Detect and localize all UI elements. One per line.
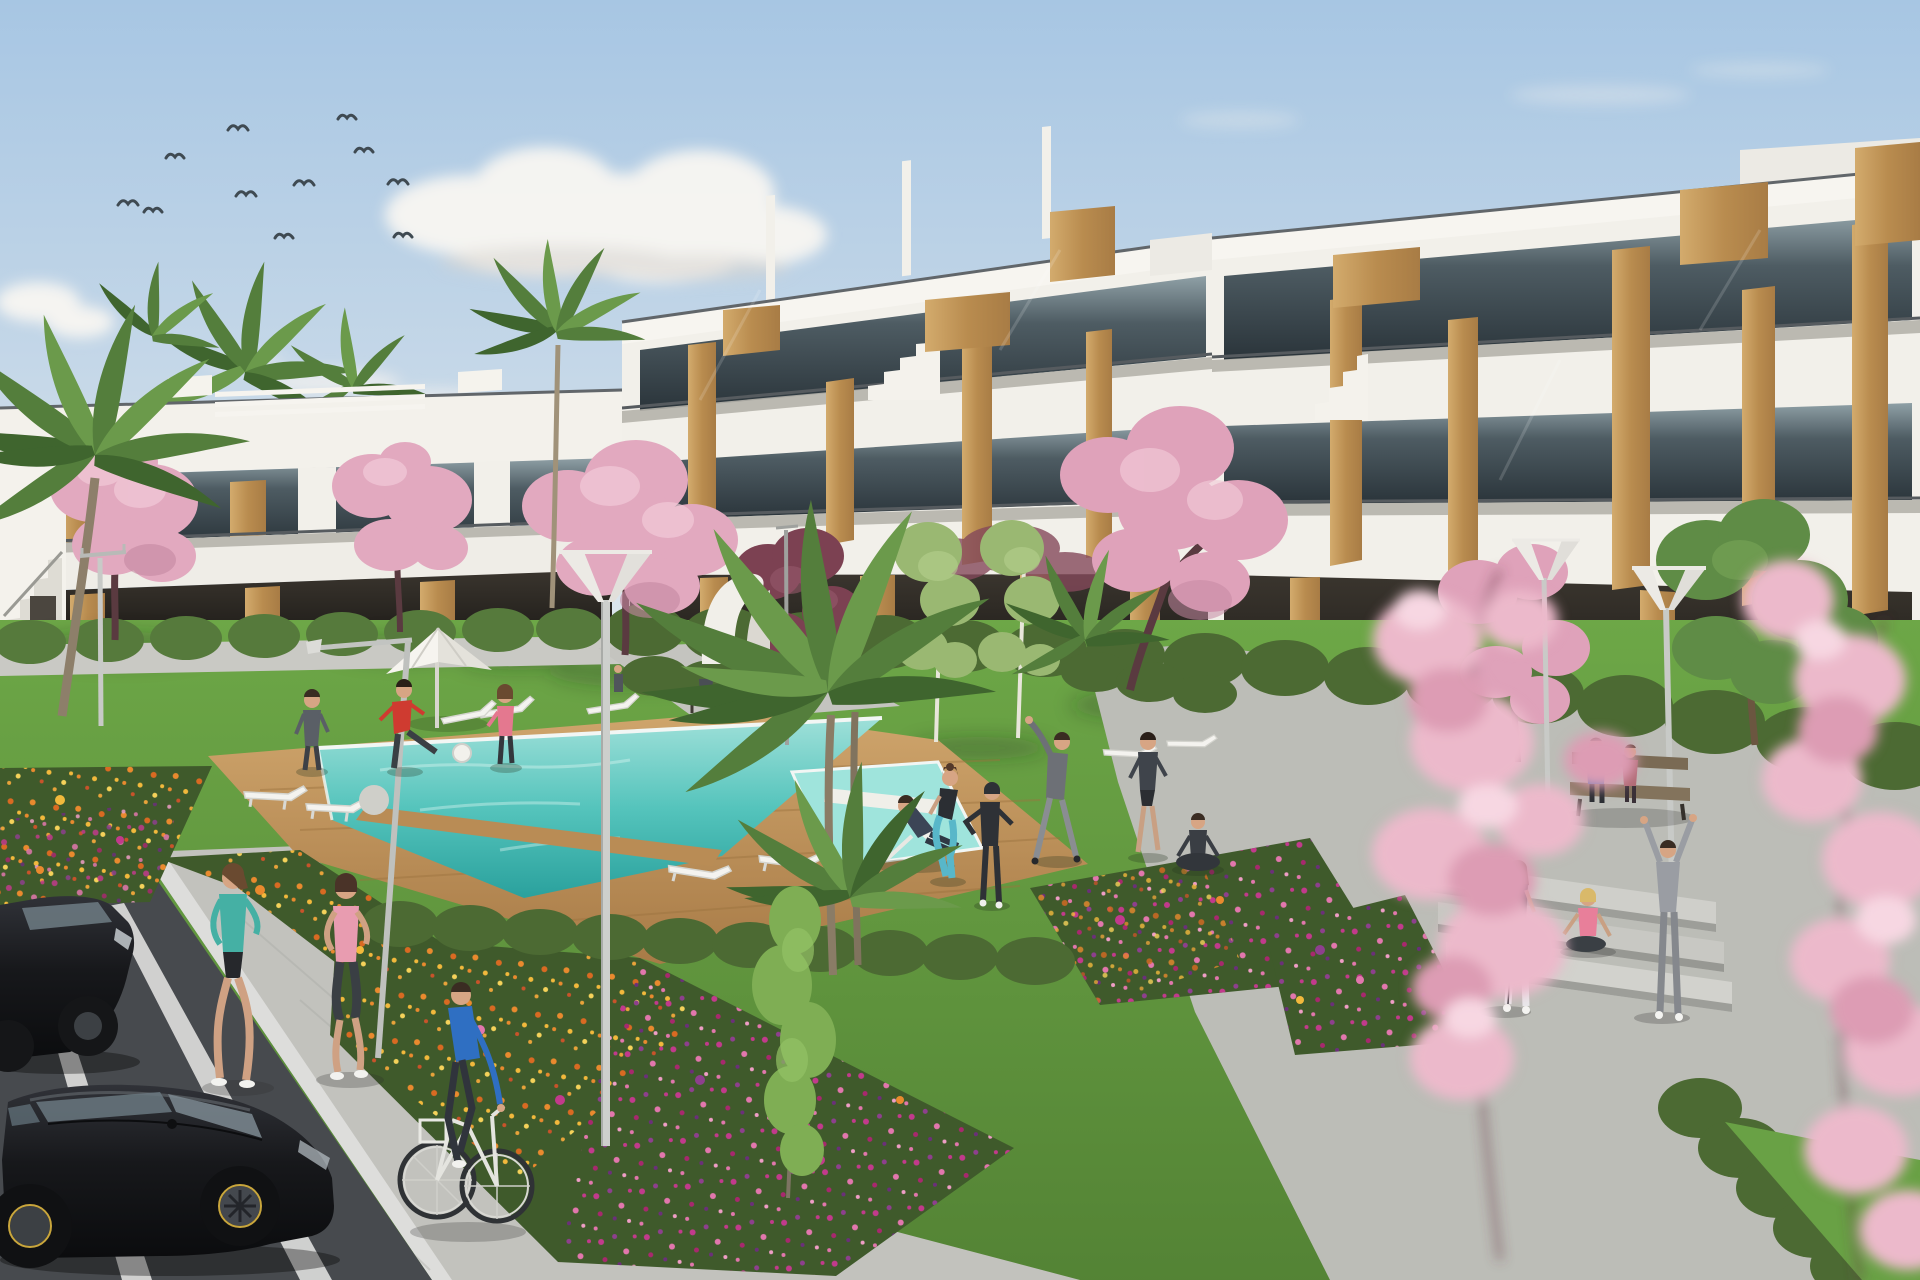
render-canvas [0, 0, 1920, 1280]
person-tiny-distant [614, 665, 623, 692]
scene-svg [0, 0, 1920, 1280]
ball [453, 744, 471, 762]
